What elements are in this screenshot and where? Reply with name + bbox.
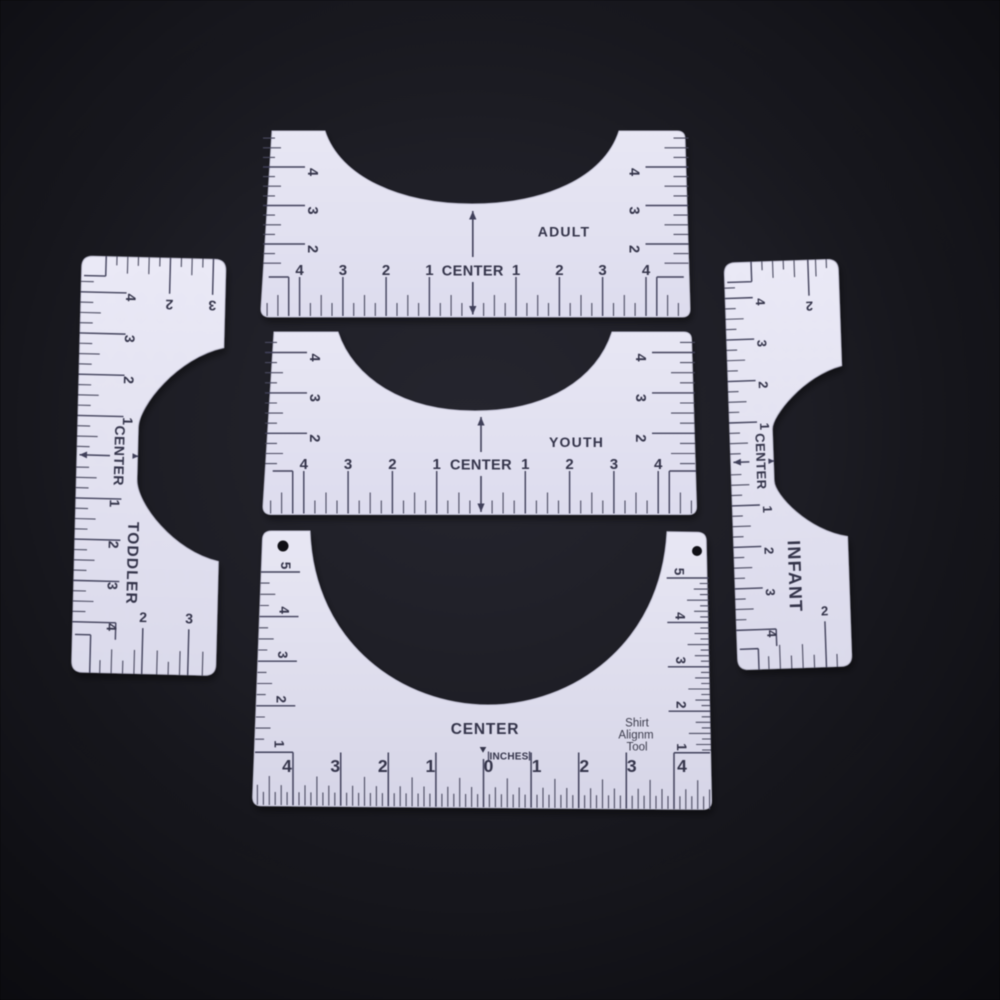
svg-text:1: 1 bbox=[674, 743, 689, 751]
svg-text:2: 2 bbox=[388, 456, 396, 473]
svg-text:1: 1 bbox=[532, 756, 542, 776]
svg-text:4: 4 bbox=[654, 456, 663, 473]
svg-text:2: 2 bbox=[273, 696, 288, 704]
svg-text:CENTER: CENTER bbox=[752, 433, 769, 490]
svg-text:5: 5 bbox=[672, 568, 687, 576]
svg-text:5: 5 bbox=[278, 562, 293, 570]
svg-text:3: 3 bbox=[105, 582, 121, 590]
svg-text:3: 3 bbox=[754, 339, 769, 347]
svg-text:4: 4 bbox=[300, 456, 309, 473]
svg-text:4: 4 bbox=[123, 293, 139, 301]
svg-text:3: 3 bbox=[304, 206, 320, 214]
svg-text:2: 2 bbox=[761, 547, 776, 555]
svg-text:1: 1 bbox=[521, 456, 529, 473]
svg-text:4: 4 bbox=[672, 612, 687, 620]
svg-text:1: 1 bbox=[426, 756, 436, 776]
svg-text:1: 1 bbox=[425, 262, 433, 279]
svg-text:2: 2 bbox=[139, 609, 147, 625]
svg-text:4: 4 bbox=[295, 262, 304, 279]
svg-text:3: 3 bbox=[344, 456, 352, 473]
svg-text:2: 2 bbox=[756, 381, 771, 389]
svg-text:3: 3 bbox=[673, 657, 688, 665]
svg-text:2: 2 bbox=[382, 262, 390, 279]
svg-text:CENTER: CENTER bbox=[451, 721, 520, 738]
svg-text:3: 3 bbox=[330, 756, 340, 776]
svg-text:4: 4 bbox=[282, 756, 292, 776]
svg-text:CENTER: CENTER bbox=[450, 458, 512, 474]
svg-text:2: 2 bbox=[565, 456, 573, 473]
svg-text:3: 3 bbox=[610, 456, 618, 473]
svg-text:3: 3 bbox=[598, 262, 606, 279]
svg-text:TODDLER: TODDLER bbox=[122, 522, 141, 605]
svg-text:4: 4 bbox=[626, 168, 642, 176]
svg-text:INFANT: INFANT bbox=[784, 540, 806, 613]
svg-text:YOUTH: YOUTH bbox=[549, 434, 604, 450]
svg-text:2: 2 bbox=[821, 603, 829, 618]
svg-text:ADULT: ADULT bbox=[538, 224, 590, 240]
svg-text:2: 2 bbox=[579, 756, 589, 776]
svg-text:3: 3 bbox=[763, 588, 778, 596]
svg-text:CENTER: CENTER bbox=[442, 264, 504, 280]
svg-text:INCHES: INCHES bbox=[490, 751, 529, 762]
svg-text:3: 3 bbox=[122, 335, 138, 343]
svg-text:2: 2 bbox=[306, 434, 322, 442]
svg-text:2: 2 bbox=[304, 245, 320, 253]
svg-text:3: 3 bbox=[275, 651, 290, 659]
svg-text:4: 4 bbox=[764, 630, 779, 639]
svg-text:3: 3 bbox=[185, 610, 193, 626]
svg-text:4: 4 bbox=[104, 623, 120, 631]
svg-text:1: 1 bbox=[120, 417, 136, 425]
svg-text:2: 2 bbox=[805, 299, 813, 314]
svg-text:2: 2 bbox=[674, 701, 689, 709]
svg-text:2: 2 bbox=[632, 434, 648, 442]
svg-text:2: 2 bbox=[555, 262, 563, 279]
svg-text:4: 4 bbox=[642, 262, 651, 279]
svg-text:1: 1 bbox=[107, 499, 123, 507]
svg-text:3: 3 bbox=[626, 206, 642, 214]
svg-text:3: 3 bbox=[339, 262, 347, 279]
svg-text:3: 3 bbox=[208, 298, 216, 314]
svg-text:2: 2 bbox=[165, 297, 173, 313]
svg-text:1: 1 bbox=[757, 422, 772, 430]
svg-text:1: 1 bbox=[760, 505, 775, 513]
svg-text:4: 4 bbox=[753, 298, 768, 307]
svg-text:2: 2 bbox=[378, 756, 388, 776]
svg-text:4: 4 bbox=[677, 756, 687, 776]
svg-text:CENTER: CENTER bbox=[111, 425, 129, 486]
svg-text:4: 4 bbox=[304, 168, 320, 176]
svg-text:4: 4 bbox=[276, 606, 291, 614]
svg-text:4: 4 bbox=[306, 353, 322, 361]
svg-text:4: 4 bbox=[632, 353, 648, 361]
svg-text:1: 1 bbox=[272, 740, 287, 748]
svg-text:1: 1 bbox=[433, 456, 441, 473]
svg-text:1: 1 bbox=[512, 262, 520, 279]
svg-text:2: 2 bbox=[121, 376, 137, 384]
svg-text:3: 3 bbox=[632, 394, 648, 402]
svg-text:2: 2 bbox=[106, 541, 122, 549]
svg-text:3: 3 bbox=[306, 394, 322, 402]
svg-text:3: 3 bbox=[627, 756, 637, 776]
svg-text:2: 2 bbox=[626, 245, 642, 253]
